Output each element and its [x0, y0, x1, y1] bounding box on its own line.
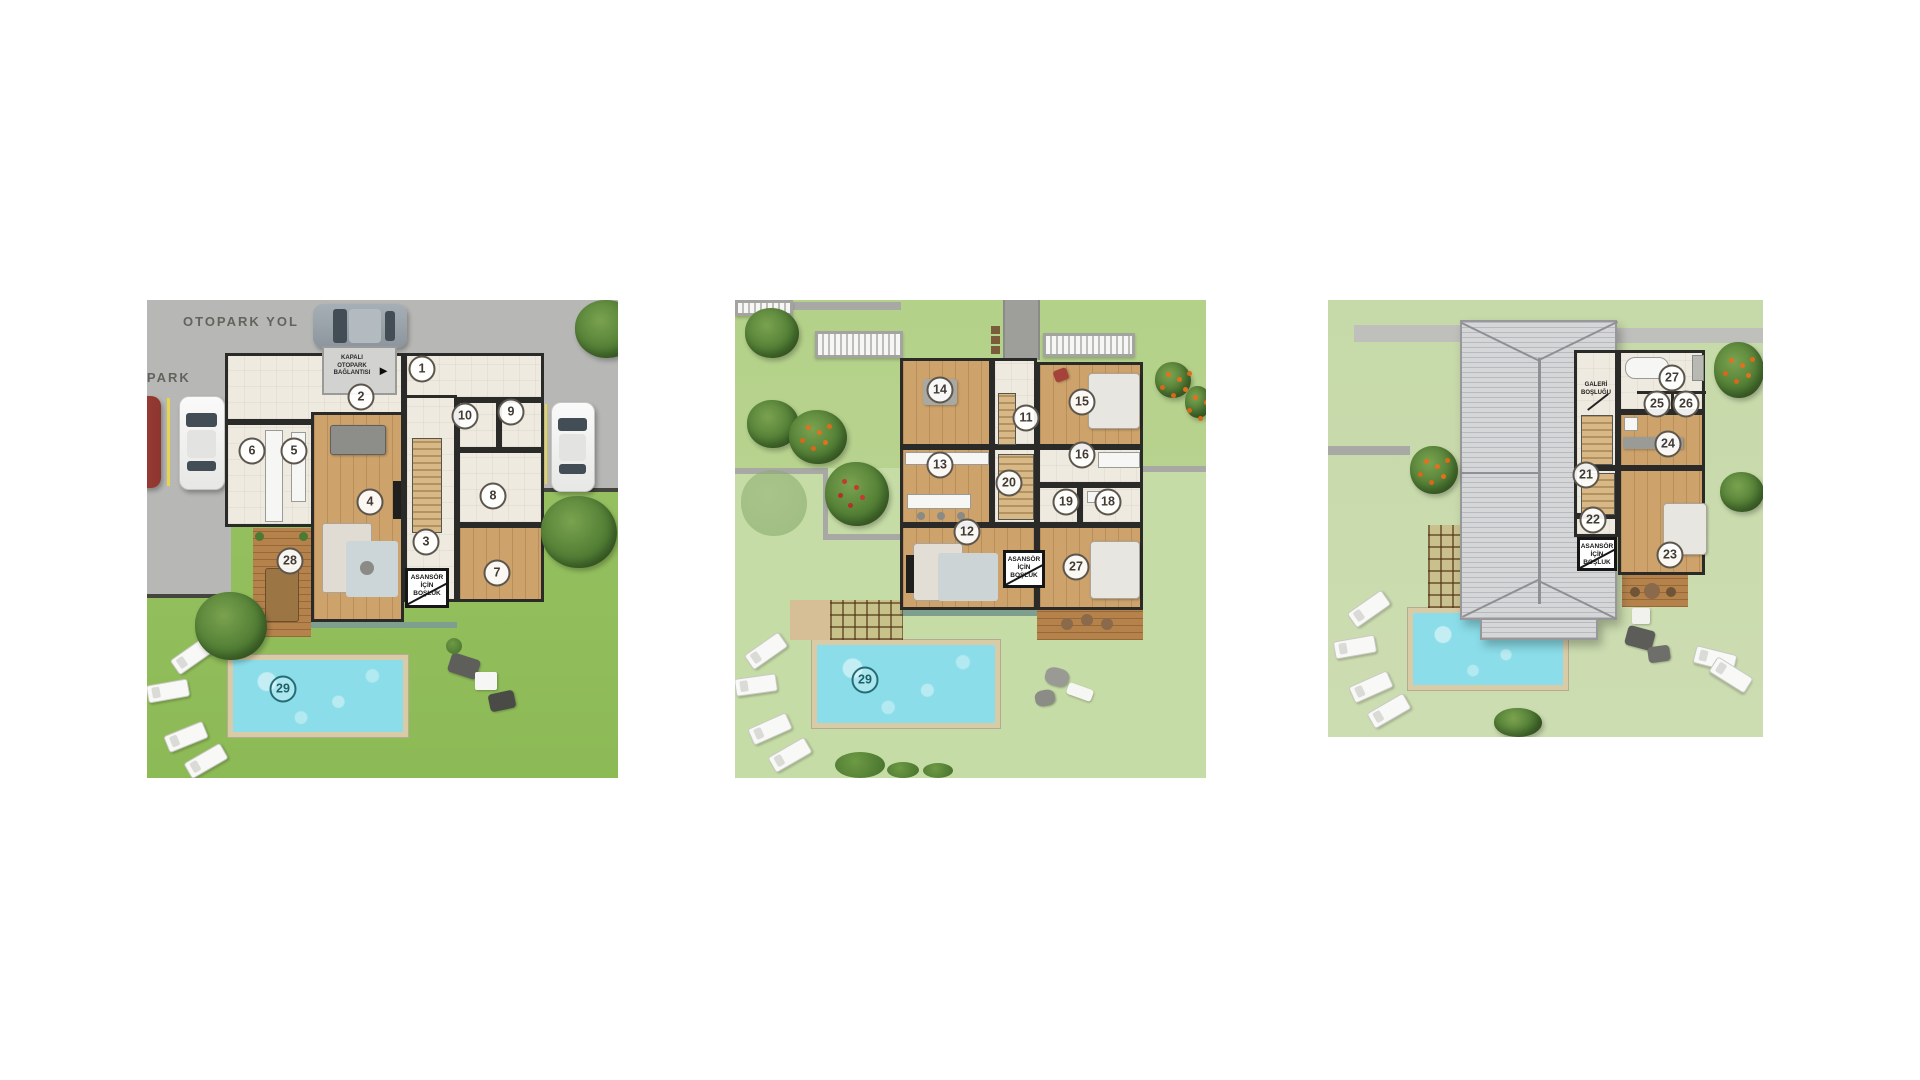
roof-ridge [1538, 358, 1541, 604]
room-badge-7: 7 [484, 560, 511, 587]
lounge-chair [163, 721, 209, 753]
pergola [1043, 333, 1135, 357]
arrow-right-icon: ► [377, 364, 390, 377]
lounge-chair [147, 678, 190, 703]
room-badge-19: 19 [1053, 489, 1080, 516]
terrace [1037, 610, 1143, 640]
room-badge-9: 9 [498, 399, 525, 426]
stool [937, 512, 945, 520]
rose-bush [825, 462, 889, 526]
wc [1624, 417, 1638, 431]
swimming-pool [228, 655, 408, 737]
floor-plans-page: OTOPARK YOL OTOPARK [0, 0, 1920, 1080]
car-windshield [333, 309, 347, 343]
dining-table [330, 425, 386, 455]
kitchen-counter [265, 430, 283, 522]
gallery-void-room [1574, 350, 1618, 468]
tree [745, 308, 799, 358]
garden-wall [791, 302, 901, 310]
room-badge-27: 27 [1063, 554, 1090, 581]
garden-path [1617, 328, 1715, 343]
bush [923, 763, 953, 778]
roof-gable-end [1480, 618, 1598, 640]
terrace [1622, 575, 1688, 607]
kitchen-island [907, 494, 971, 509]
rug [938, 553, 998, 601]
room-badge-21: 21 [1573, 462, 1600, 489]
fruit-bush [1155, 362, 1191, 398]
room-badge-5: 5 [281, 438, 308, 465]
staircase [1581, 415, 1613, 465]
roof-hip [1538, 580, 1617, 620]
bush [446, 638, 462, 654]
room-badge-25: 25 [1644, 391, 1671, 418]
fruit-tree [789, 410, 847, 464]
ground-floor-plan: OTOPARK YOL OTOPARK [147, 300, 618, 778]
garden-chair [1647, 645, 1671, 664]
parking-line-yellow [167, 398, 170, 486]
room-badge-18: 18 [1095, 489, 1122, 516]
room-badge-27: 27 [1659, 365, 1686, 392]
room-badge-26: 26 [1673, 391, 1700, 418]
plant-pot [299, 532, 308, 541]
tree [1720, 472, 1763, 512]
lounge-chair [1366, 693, 1411, 730]
room-badge-29: 29 [270, 676, 297, 703]
plant-pot [255, 532, 264, 541]
coffee-table [360, 561, 374, 575]
planter [991, 326, 1000, 334]
parking-line-yellow [545, 404, 547, 484]
garden-path [1713, 328, 1763, 343]
room-bedroom-27 [1037, 525, 1143, 610]
room-badge-8: 8 [480, 483, 507, 510]
hall-11 [992, 358, 1037, 447]
lounge-chair [1347, 590, 1392, 629]
pergola [815, 331, 903, 358]
room-badge-20: 20 [996, 470, 1023, 497]
car-rear-glass [559, 464, 586, 474]
garage-link-label: KAPALI OTOPARK BAĞLANTISI [326, 355, 378, 378]
car-gray-icon [313, 304, 407, 348]
parking-label: OTOPARK [147, 370, 191, 385]
room-badge-28: 28 [277, 548, 304, 575]
room-living-dining [311, 412, 404, 622]
fruit-tree [1410, 446, 1458, 494]
staircase [412, 438, 442, 533]
car-rear-glass [385, 311, 395, 341]
room-badge-15: 15 [1069, 389, 1096, 416]
planter [991, 336, 1000, 344]
patio-tiles [790, 600, 830, 640]
stool [917, 512, 925, 520]
fruit-tree [1714, 342, 1763, 398]
garden-path [1354, 325, 1460, 342]
room-badge-22: 22 [1580, 507, 1607, 534]
chair [1081, 614, 1093, 626]
trellis [830, 600, 903, 640]
planter [991, 346, 1000, 354]
garden-wall [1328, 446, 1410, 455]
garden-table [475, 672, 497, 690]
tv-unit [906, 555, 914, 593]
shower [1692, 355, 1704, 381]
car-red-icon [147, 396, 161, 488]
room-badge-24: 24 [1655, 431, 1682, 458]
lounge-chair [1348, 670, 1394, 704]
table [1644, 583, 1660, 599]
bed [1088, 373, 1140, 429]
chair [1666, 587, 1676, 597]
car-white-left-icon [179, 396, 225, 490]
deck-table [265, 568, 299, 622]
room-badge-1: 1 [409, 356, 436, 383]
road-label: OTOPARK YOL [183, 314, 299, 329]
room-badge-14: 14 [927, 377, 954, 404]
room-kitchen [225, 422, 317, 527]
car-rear-glass [187, 461, 216, 471]
room-badge-11: 11 [1013, 405, 1040, 432]
room-badge-2: 2 [348, 384, 375, 411]
elevator-void-box: ASANSÖR İÇİN BOŞLUK [405, 568, 449, 608]
tv-unit [393, 481, 401, 519]
chair [1101, 618, 1113, 630]
planter-strip [311, 622, 457, 628]
room-badge-13: 13 [927, 452, 954, 479]
garden-chair [487, 689, 516, 712]
tree [195, 592, 267, 660]
lounge-chair [1333, 634, 1377, 659]
chair [1630, 587, 1640, 597]
bathtub [1098, 452, 1140, 468]
roof-floor-plan: ASANSÖR İÇİN BOŞLUK GALERİ BOŞLUĞU 27 25… [1328, 300, 1763, 737]
swimming-pool [812, 640, 1000, 728]
gallery-void-label: GALERİ BOŞLUĞU [1576, 382, 1616, 397]
car-roof [559, 434, 586, 461]
room-badge-29: 29 [852, 667, 879, 694]
tree [1494, 708, 1542, 737]
room-badge-23: 23 [1657, 542, 1684, 569]
car-roof [349, 309, 381, 343]
car-windshield [186, 413, 217, 427]
chair [1061, 618, 1073, 630]
room-badge-12: 12 [954, 519, 981, 546]
roof-valley [1462, 472, 1538, 474]
room-badge-4: 4 [357, 489, 384, 516]
garden-wall [1143, 466, 1206, 472]
pale-tree [741, 470, 807, 536]
bush [835, 752, 885, 778]
bed [1090, 541, 1140, 599]
fruit-bush [1185, 386, 1206, 418]
room-badge-3: 3 [413, 529, 440, 556]
lounge-chair [183, 743, 228, 778]
first-floor-plan: ASANSÖR İÇİN BOŞLUK 14 11 1 [735, 300, 1206, 778]
room-badge-6: 6 [239, 438, 266, 465]
planter-strip [900, 610, 1037, 616]
entry-path [1003, 300, 1040, 360]
car-white-right-icon [551, 402, 595, 492]
elevator-void-box: ASANSÖR İÇİN BOŞLUK [1577, 537, 1617, 571]
room-badge-16: 16 [1069, 442, 1096, 469]
tree [541, 496, 617, 568]
elevator-void-box: ASANSÖR İÇİN BOŞLUK [1003, 550, 1045, 588]
armchair [1052, 367, 1069, 383]
room-study-14 [900, 358, 992, 447]
garden-table [1632, 608, 1650, 624]
car-roof [187, 430, 216, 458]
car-windshield [558, 418, 587, 431]
roof-hip [1462, 578, 1541, 618]
room-badge-10: 10 [452, 403, 479, 430]
garden-wall [823, 534, 903, 540]
bush [887, 762, 919, 778]
roof-hip [1461, 322, 1540, 362]
